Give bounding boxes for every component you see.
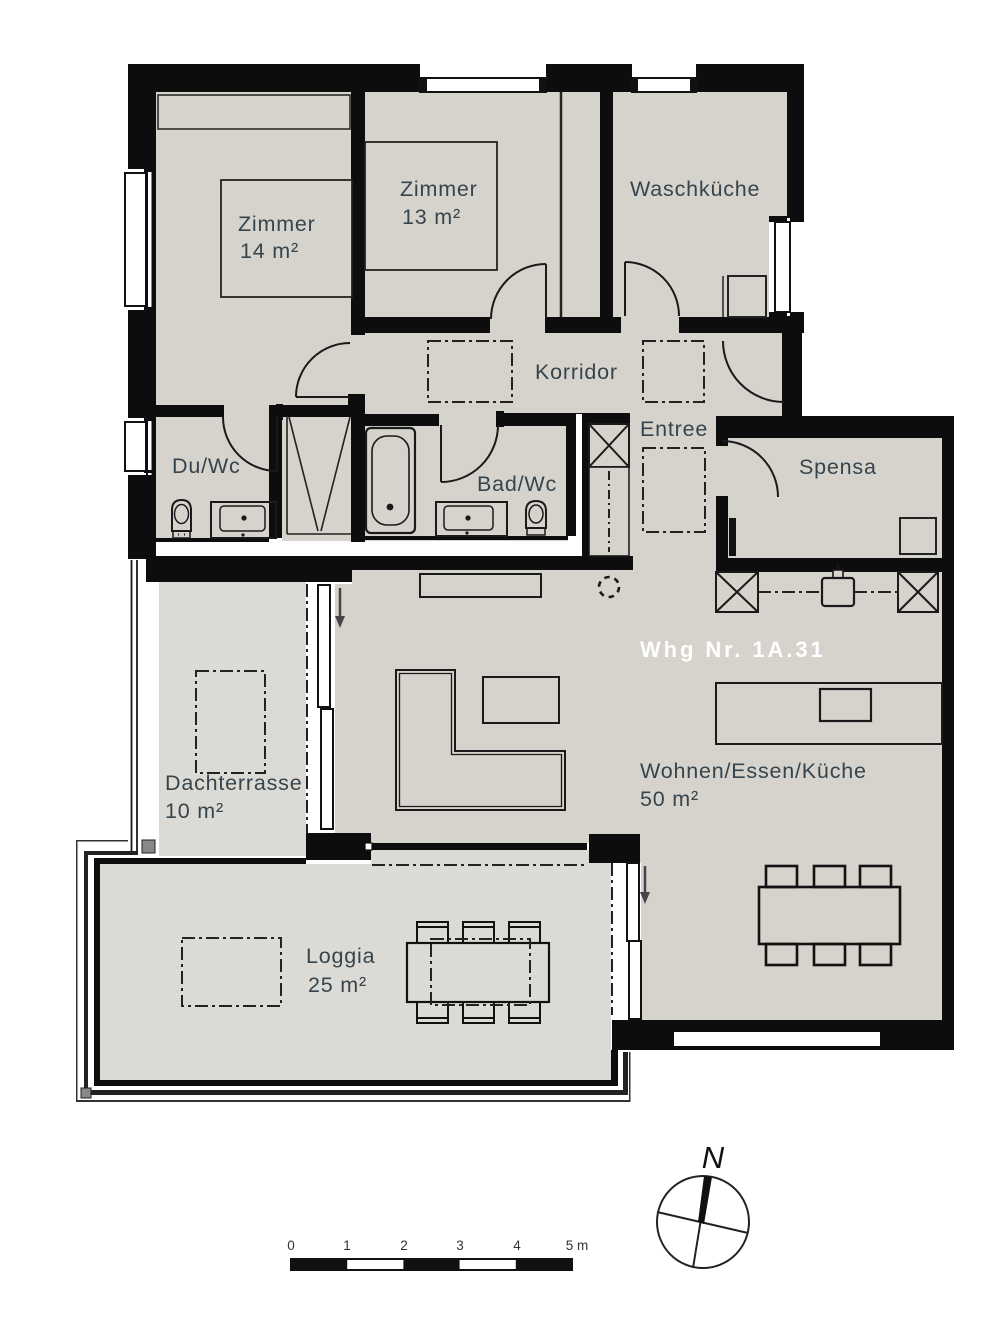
svg-text:13 m²: 13 m² (402, 205, 461, 229)
svg-text:Korridor: Korridor (535, 360, 618, 384)
svg-text:4: 4 (513, 1238, 521, 1253)
svg-text:50 m²: 50 m² (640, 787, 699, 811)
svg-text:Waschküche: Waschküche (630, 177, 760, 201)
svg-text:Zimmer: Zimmer (400, 177, 478, 201)
svg-text:25 m²: 25 m² (308, 973, 367, 997)
svg-text:14 m²: 14 m² (240, 239, 299, 263)
svg-text:Entree: Entree (640, 417, 708, 441)
svg-text:5 m: 5 m (566, 1238, 589, 1253)
svg-text:Wohnen/Essen/Küche: Wohnen/Essen/Küche (640, 759, 867, 783)
svg-text:10 m²: 10 m² (165, 799, 224, 823)
svg-text:2: 2 (400, 1238, 408, 1253)
svg-text:Dachterrasse: Dachterrasse (165, 771, 302, 795)
svg-text:N: N (702, 1140, 725, 1175)
svg-text:1: 1 (343, 1238, 351, 1253)
svg-text:Du/Wc: Du/Wc (172, 454, 241, 478)
svg-text:Whg Nr. 1A.31: Whg Nr. 1A.31 (640, 637, 826, 662)
svg-text:Zimmer: Zimmer (238, 212, 316, 236)
svg-text:Loggia: Loggia (306, 944, 375, 968)
svg-text:Bad/Wc: Bad/Wc (477, 472, 557, 496)
svg-text:3: 3 (456, 1238, 464, 1253)
svg-text:Spensa: Spensa (799, 455, 877, 479)
svg-text:0: 0 (287, 1238, 295, 1253)
